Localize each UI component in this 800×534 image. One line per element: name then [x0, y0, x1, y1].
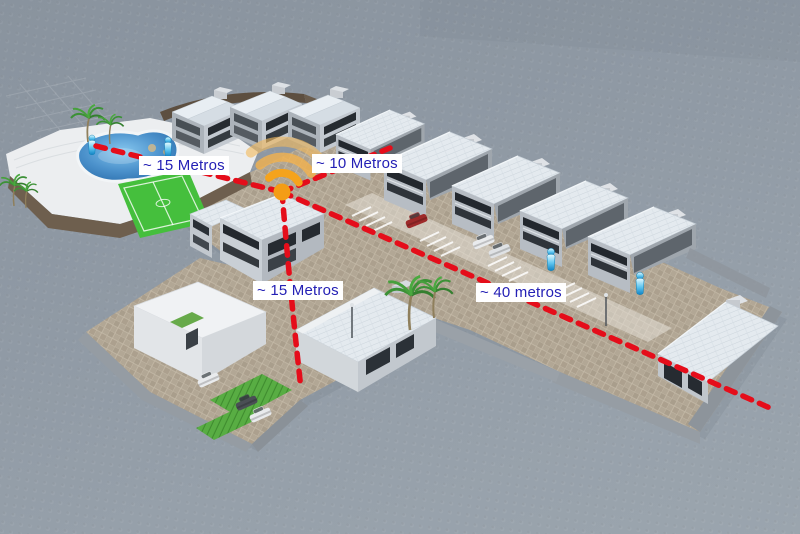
distance-label-right-houses: ~ 10 Metros: [312, 154, 402, 173]
distance-label-pool: ~ 15 Metros: [139, 156, 229, 175]
distance-label-lower-houses: ~ 15 Metros: [253, 281, 343, 300]
person-marker: [547, 248, 555, 270]
person-marker: [164, 137, 171, 157]
distance-label-far-houses: ~ 40 metros: [476, 283, 566, 302]
site-3d-render: ~ 15 Metros ~ 10 Metros ~ 15 Metros ~ 40…: [0, 0, 800, 534]
scene-canvas: [0, 0, 800, 534]
person-marker: [636, 272, 644, 294]
